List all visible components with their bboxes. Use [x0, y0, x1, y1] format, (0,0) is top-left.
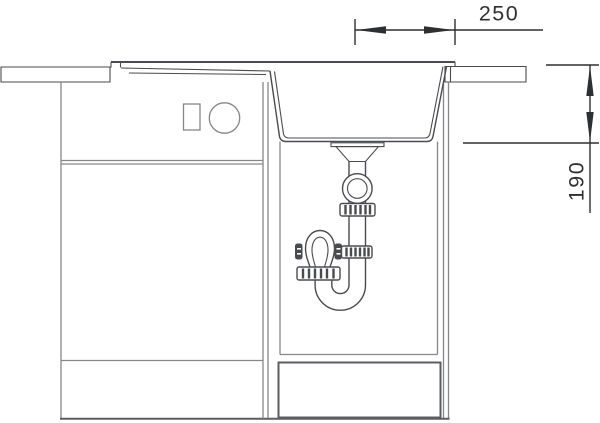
- dimension-ticks: [355, 19, 455, 45]
- sink-installation-drawing: 250 190: [0, 0, 600, 423]
- wing-nut-left-slit2: [297, 253, 301, 255]
- sink: [111, 62, 455, 142]
- cabinet-partition: [263, 82, 268, 419]
- cabinet-right-wall: [444, 82, 449, 419]
- wing-nut-right-slit2: [337, 253, 341, 255]
- cabinet-right-drawer-panel: [279, 363, 441, 418]
- technical-drawing-canvas: 250 190: [0, 0, 600, 423]
- sink-drainboard: [121, 68, 270, 75]
- elbow-outer: [306, 231, 335, 268]
- dimension-vertical: 190: [463, 65, 599, 213]
- elbow-inner: [312, 237, 328, 267]
- arrow-right-icon: [424, 26, 454, 33]
- sink-bowl-outer: [270, 67, 447, 142]
- dimension-horizontal: 250: [355, 2, 543, 46]
- wing-nut-right-slit: [337, 248, 341, 250]
- coupling-nut-middle: [342, 246, 373, 258]
- drain-flange: [331, 143, 384, 147]
- arrow-down-icon: [586, 112, 593, 142]
- cutout-rect-symbol: [184, 104, 201, 130]
- dimension-horizontal-label: 250: [479, 2, 519, 26]
- ball-joint-outer: [343, 174, 373, 204]
- cabinet: [60, 82, 450, 419]
- dimension-vertical-label: 190: [565, 161, 589, 201]
- sink-bowl-inner: [275, 67, 444, 139]
- wing-nut-right: [335, 244, 343, 260]
- wing-nut-left: [295, 244, 303, 260]
- trap-riser-pipe: [315, 280, 332, 285]
- arrow-up-icon: [586, 66, 593, 96]
- coupling-nut-riser: [297, 267, 340, 280]
- trap-u-bend-inner: [332, 285, 349, 294]
- countertop-left-section: [1, 67, 110, 82]
- cabinet-top-rail: [61, 161, 263, 165]
- drain-funnel: [336, 147, 379, 162]
- countertop-right-section: [445, 67, 526, 83]
- cutout-circle-symbol: [209, 103, 239, 133]
- trap-u-bend-outer: [315, 285, 365, 310]
- wing-nut-left-slit: [297, 248, 301, 250]
- outlet-elbow: [295, 231, 342, 268]
- coupling-nut-upper: [340, 204, 375, 217]
- arrow-left-icon: [356, 26, 386, 33]
- drain-assembly: [295, 143, 384, 310]
